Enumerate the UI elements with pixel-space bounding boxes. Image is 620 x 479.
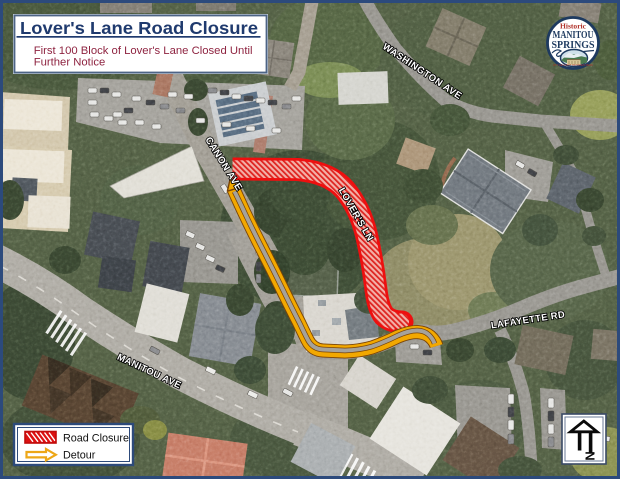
svg-text:Road Closure: Road Closure [63,433,129,445]
svg-text:AT THE FOOT OF PIKES PEAK: AT THE FOOT OF PIKES PEAK [553,63,593,67]
svg-text:Further Notice: Further Notice [34,56,106,68]
svg-text:First 100 Block of Lover's Lan: First 100 Block of Lover's Lane Closed U… [34,45,253,57]
svg-text:Lover's Lane Road Closure: Lover's Lane Road Closure [20,18,258,38]
svg-text:Detour: Detour [63,450,96,462]
svg-text:N: N [583,451,598,460]
